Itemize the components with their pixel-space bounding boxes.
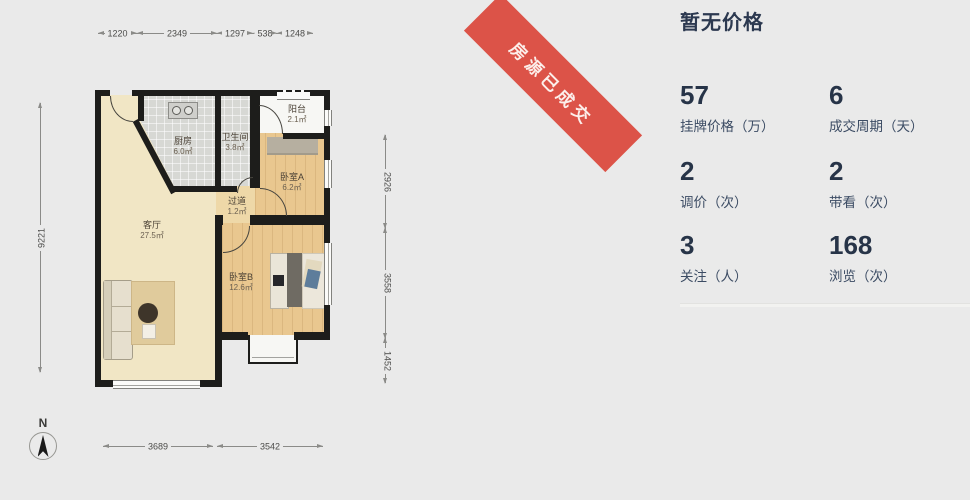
label-bathroom: 卫生间3.8㎡: [221, 132, 248, 153]
price-panel: 暂无价格 57 挂牌价格（万） 6 成交周期（天） 2 调价（次） 2 带看（次…: [680, 6, 970, 306]
dim-top-5: 1248: [277, 33, 313, 34]
stat-views: 168 浏览（次）: [829, 232, 969, 285]
stat-deal-cycle: 6 成交周期（天）: [829, 82, 969, 135]
stat-listing-price: 57 挂牌价格（万）: [680, 82, 820, 135]
wall: [215, 225, 222, 380]
bay-window: [248, 335, 298, 364]
dim-top-2: 2349: [137, 33, 217, 34]
wall: [95, 90, 101, 387]
label-bedroomA: 卧室A6.2㎡: [280, 172, 304, 193]
coffee-table: [142, 324, 156, 339]
sold-ribbon: 房源已成交: [464, 0, 642, 172]
burner-icon: [172, 106, 181, 115]
compass-ring: [29, 432, 57, 460]
wall: [250, 215, 326, 225]
wall: [215, 95, 221, 188]
window-dashed: [277, 90, 310, 100]
dim-right-1: 2926: [385, 135, 386, 228]
label-bedroomB: 卧室B12.6㎡: [229, 272, 253, 293]
wall: [173, 186, 237, 192]
sofa: [103, 280, 133, 360]
label-living: 客厅27.5㎡: [140, 220, 164, 241]
plant: [138, 303, 158, 323]
wall: [294, 332, 326, 340]
wall: [324, 126, 330, 160]
wall: [138, 95, 144, 121]
price-title: 暂无价格: [680, 6, 970, 35]
label-kitchen: 厨房6.0㎡: [173, 136, 192, 157]
wall: [200, 380, 222, 387]
tv: [273, 275, 284, 286]
wall: [283, 133, 326, 139]
dim-right-3: 1452: [385, 338, 386, 383]
dim-top-3: 1297: [217, 33, 253, 34]
stat-followers: 3 关注（人）: [680, 232, 820, 285]
bay-window-glass: [252, 357, 294, 358]
window: [113, 380, 200, 389]
dim-top-4: 538: [253, 33, 277, 34]
stat-price-adjustments: 2 调价（次）: [680, 158, 820, 211]
dim-right-2: 3558: [385, 228, 386, 338]
window: [324, 243, 332, 305]
window: [324, 110, 332, 126]
stat-showings: 2 带看（次）: [829, 158, 969, 211]
floorplan-image: 厨房6.0㎡ 卫生间3.8㎡ 阳台2.1㎡ 卧室A6.2㎡ 过道1.2㎡ 客厅2…: [95, 90, 330, 390]
listing-page: 厨房6.0㎡ 卫生间3.8㎡ 阳台2.1㎡ 卧室A6.2㎡ 过道1.2㎡ 客厅2…: [0, 0, 970, 500]
wall: [215, 215, 223, 225]
sofa-cushion-line: [112, 306, 131, 307]
wall: [324, 90, 330, 110]
dim-left-1: 9221: [40, 103, 41, 372]
sofa-back: [104, 281, 112, 359]
compass-needle-icon: [38, 435, 49, 457]
dim-bottom-2: 3542: [217, 446, 323, 447]
burner-icon: [184, 106, 193, 115]
section-divider: [680, 303, 970, 307]
compass-north-label: N: [27, 416, 59, 430]
bedroomB-cabinet: [287, 253, 302, 307]
sofa-cushion-line: [112, 331, 131, 332]
wall: [95, 380, 113, 387]
label-hallway: 过道1.2㎡: [227, 196, 246, 217]
bedA-bed: [267, 137, 318, 155]
label-balcony: 阳台2.1㎡: [287, 104, 306, 125]
compass: N: [27, 416, 59, 460]
window: [324, 160, 332, 188]
dim-bottom-1: 3689: [103, 446, 213, 447]
dim-top-1: 1220: [98, 33, 137, 34]
sold-ribbon-label: 房源已成交: [505, 35, 600, 130]
stove: [168, 102, 198, 119]
